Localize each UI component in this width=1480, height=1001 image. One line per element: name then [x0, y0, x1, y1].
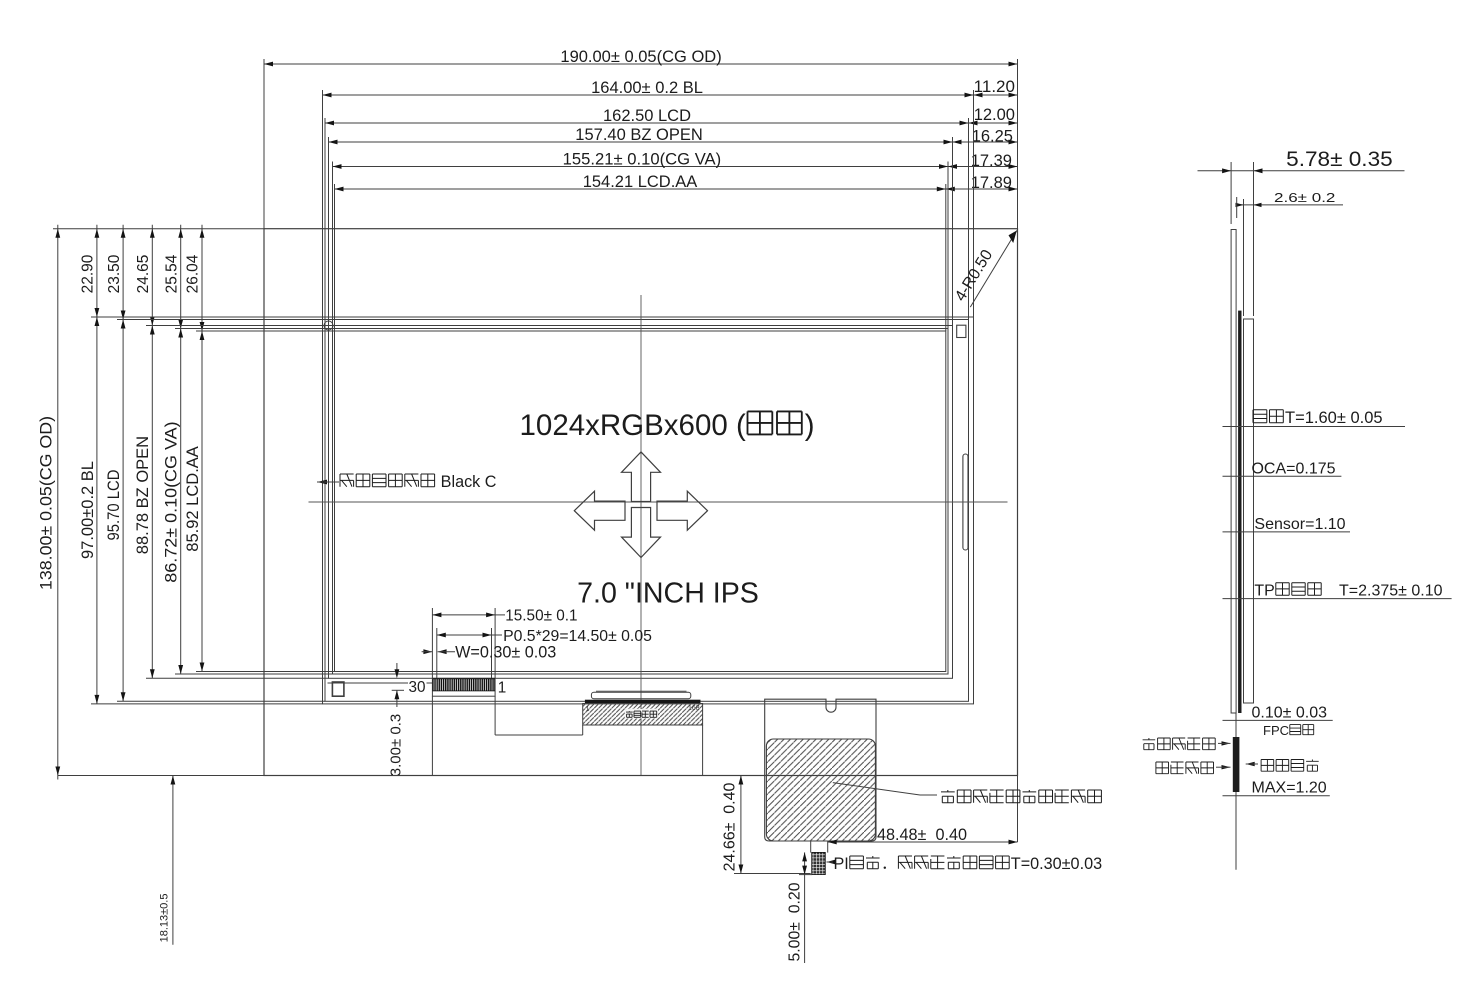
svg-text:30: 30: [409, 679, 426, 696]
svg-text:138.00± 0.05(CG OD): 138.00± 0.05(CG OD): [37, 416, 55, 590]
svg-text:T=2.375± 0.10: T=2.375± 0.10: [1339, 583, 1443, 600]
svg-text:95.70 LCD: 95.70 LCD: [105, 469, 123, 540]
svg-text:16.25: 16.25: [972, 128, 1013, 146]
svg-text:T=1.60± 0.05: T=1.60± 0.05: [1285, 409, 1383, 427]
svg-text:OCA=0.175: OCA=0.175: [1252, 461, 1336, 478]
svg-text:17.89: 17.89: [971, 174, 1012, 192]
svg-text:24.66± 0.40: 24.66± 0.40: [722, 783, 739, 872]
svg-text:Sensor=1.10: Sensor=1.10: [1254, 516, 1345, 533]
svg-text:26.04: 26.04: [185, 254, 202, 293]
svg-text:Black C: Black C: [436, 473, 497, 491]
svg-text:157.40 BZ OPEN: 157.40 BZ OPEN: [575, 126, 703, 144]
svg-text:1: 1: [498, 680, 507, 697]
svg-text:5.00± 0.20: 5.00± 0.20: [787, 882, 804, 961]
svg-text:24.65: 24.65: [135, 255, 152, 294]
svg-text:190.00± 0.05(CG OD): 190.00± 0.05(CG OD): [560, 48, 721, 66]
svg-text:MAX=1.20: MAX=1.20: [1252, 780, 1327, 797]
svg-text:17.39: 17.39: [971, 152, 1012, 170]
svg-text:48.48± 0.40: 48.48± 0.40: [877, 826, 967, 844]
svg-text:155.21± 0.10(CG VA): 155.21± 0.10(CG VA): [563, 151, 722, 169]
svg-text:162.50 LCD: 162.50 LCD: [603, 107, 691, 125]
svg-text:97.00±0.2 BL: 97.00±0.2 BL: [79, 461, 97, 559]
svg-text:164.00± 0.2 BL: 164.00± 0.2 BL: [591, 79, 703, 97]
svg-text:88.78 BZ OPEN: 88.78 BZ OPEN: [134, 436, 152, 554]
svg-text:2.6± 0.2: 2.6± 0.2: [1274, 190, 1335, 205]
svg-text:22.90: 22.90: [80, 254, 97, 293]
svg-text:18.13±0.5: 18.13±0.5: [158, 894, 170, 943]
svg-text:23.50: 23.50: [106, 254, 123, 293]
svg-text:85.92 LCD.AA: 85.92 LCD.AA: [184, 446, 202, 552]
svg-text:T=0.30±0.03: T=0.30±0.03: [1011, 855, 1102, 873]
svg-text:1024xRGBx600 (: 1024xRGBx600 (: [520, 409, 746, 442]
svg-text:W=0.30± 0.03: W=0.30± 0.03: [455, 644, 556, 662]
svg-text:11.20: 11.20: [974, 78, 1015, 96]
svg-text:1: 1: [586, 706, 590, 713]
svg-text:86.72± 0.10(CG VA): 86.72± 0.10(CG VA): [163, 421, 181, 582]
svg-text:154.21 LCD.AA: 154.21 LCD.AA: [583, 173, 698, 191]
svg-text:0.10± 0.03: 0.10± 0.03: [1252, 705, 1328, 722]
svg-text:PI: PI: [834, 855, 849, 873]
svg-text:3.00± 0.3: 3.00± 0.3: [388, 714, 405, 776]
svg-text:TP: TP: [1254, 583, 1274, 600]
svg-text:12.00: 12.00: [974, 106, 1015, 124]
svg-text:FPC: FPC: [1263, 723, 1289, 738]
svg-text:7.0 "INCH IPS: 7.0 "INCH IPS: [577, 578, 759, 610]
svg-text:15.50± 0.1: 15.50± 0.1: [505, 608, 577, 625]
svg-text:5.78± 0.35: 5.78± 0.35: [1286, 147, 1393, 171]
svg-text:168: 168: [688, 705, 700, 712]
svg-text:): ): [805, 409, 815, 442]
svg-text:25.54: 25.54: [163, 254, 180, 293]
svg-text:P0.5*29=14.50± 0.05: P0.5*29=14.50± 0.05: [503, 628, 652, 645]
